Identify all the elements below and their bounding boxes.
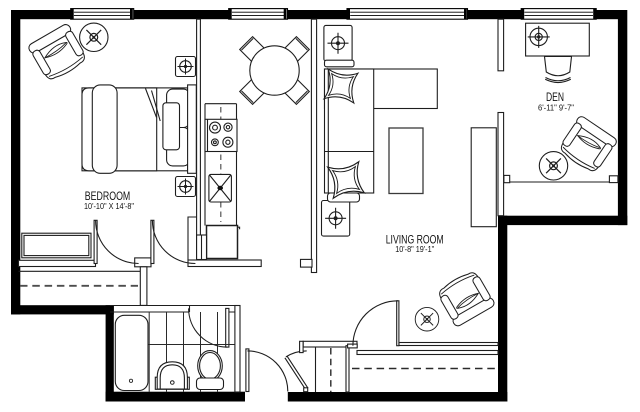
svg-text:10'-8" 19'-1": 10'-8" 19'-1" — [395, 245, 434, 254]
svg-text:6'-11" 9'-7": 6'-11" 9'-7" — [538, 103, 574, 112]
svg-text:10'-10" X 14'-8": 10'-10" X 14'-8" — [84, 202, 134, 211]
svg-text:DEN: DEN — [546, 92, 564, 104]
